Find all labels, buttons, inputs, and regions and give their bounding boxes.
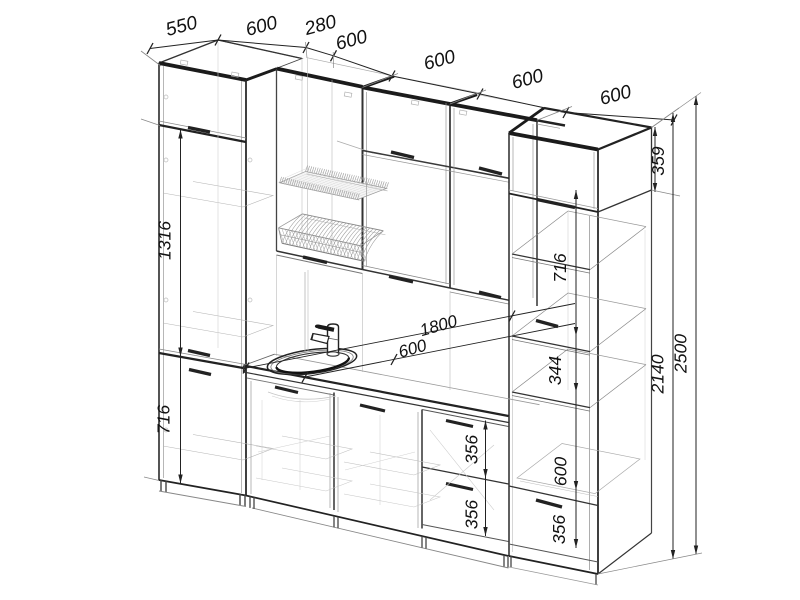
svg-text:1316: 1316 <box>155 221 175 260</box>
svg-text:356: 356 <box>462 435 482 464</box>
svg-text:359: 359 <box>648 146 668 175</box>
svg-text:2140: 2140 <box>648 354 668 394</box>
svg-text:356: 356 <box>549 515 569 544</box>
svg-text:2500: 2500 <box>671 334 691 374</box>
svg-text:344: 344 <box>545 356 565 385</box>
svg-text:600: 600 <box>551 457 571 486</box>
svg-text:356: 356 <box>462 500 482 529</box>
svg-text:716: 716 <box>154 405 174 434</box>
svg-text:716: 716 <box>550 253 570 282</box>
